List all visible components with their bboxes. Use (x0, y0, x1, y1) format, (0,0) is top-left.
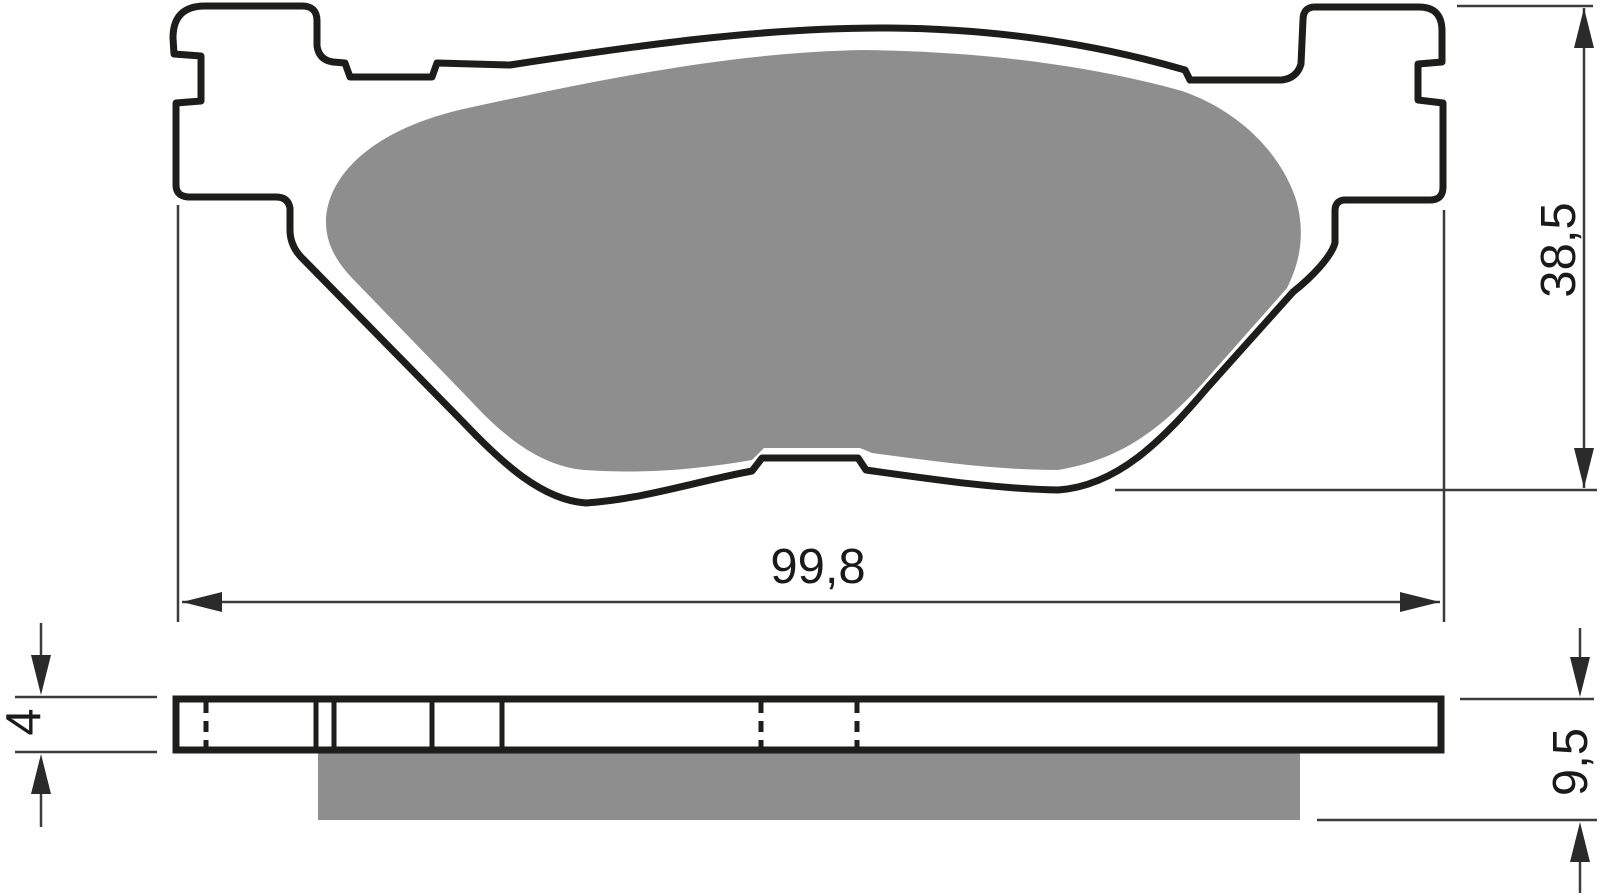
arrowhead-bottom (1574, 448, 1594, 488)
brake-pad-technical-drawing: 99,8 38,5 4 9,5 (0, 0, 1600, 895)
dimension-backplate-thickness: 4 (0, 623, 157, 827)
arrowhead-up (31, 754, 51, 794)
dimension-total-thickness: 9,5 (1317, 628, 1598, 893)
arrowhead-right (1400, 592, 1440, 612)
arrowhead-down (31, 655, 51, 695)
side-view (176, 699, 1441, 820)
top-view (173, 6, 1443, 503)
friction-material-profile (318, 753, 1300, 820)
dimension-label-height: 38,5 (1532, 202, 1586, 297)
arrowhead-down (1570, 657, 1590, 697)
dimension-label-plate-thickness: 4 (0, 708, 51, 735)
dimension-label-total-thickness: 9,5 (1544, 728, 1598, 796)
arrowhead-left (182, 592, 222, 612)
arrowhead-up (1570, 822, 1590, 862)
backplate-profile (176, 699, 1441, 750)
dimension-label-width: 99,8 (770, 540, 865, 594)
drawing-svg: 99,8 38,5 4 9,5 (0, 0, 1600, 895)
arrowhead-top (1574, 8, 1594, 48)
